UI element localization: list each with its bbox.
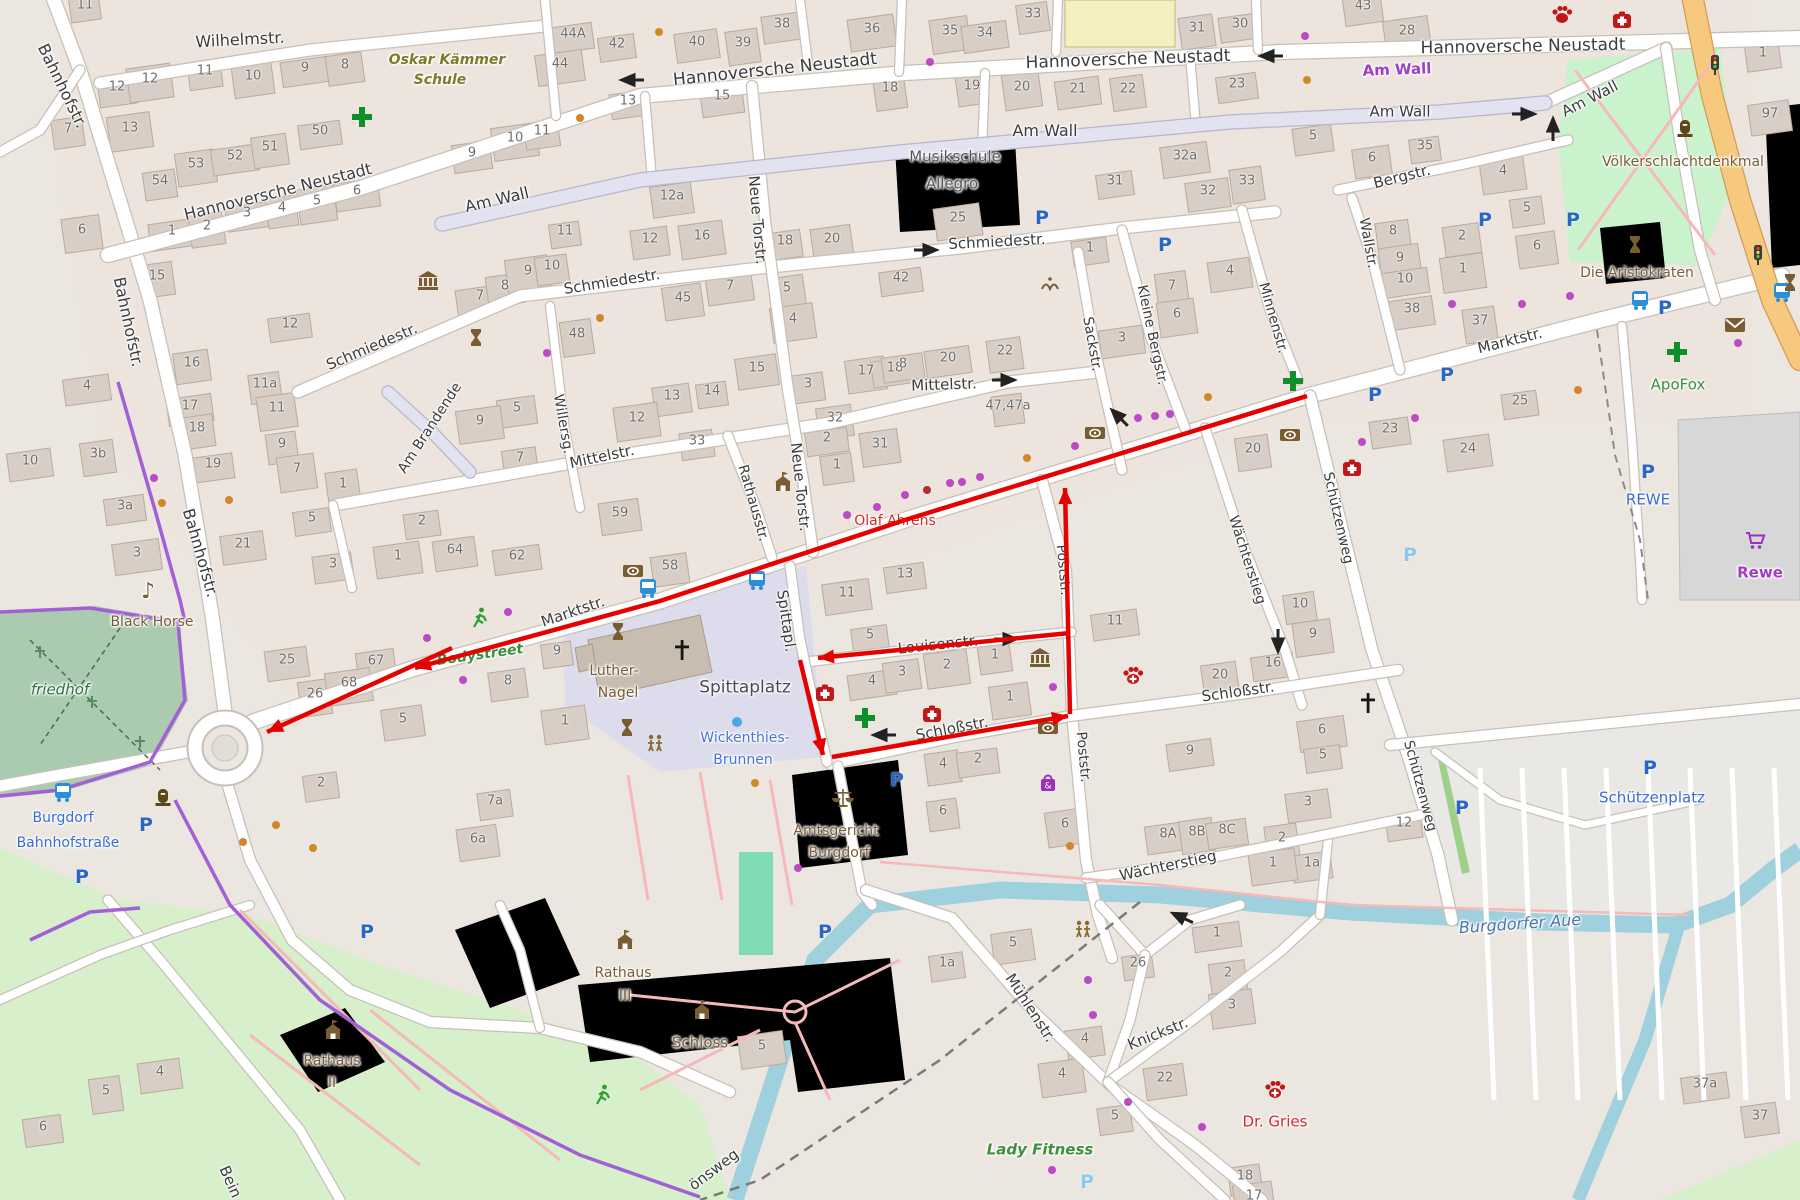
- oneway-arrow-icon: [1109, 407, 1132, 430]
- oneway-arrow-icon: [1261, 51, 1283, 61]
- route-arrowhead: [1058, 488, 1072, 504]
- poi-dot: [655, 28, 663, 36]
- poi-dot: [272, 821, 280, 829]
- poi-dot: [1448, 300, 1456, 308]
- poi-dot: [1049, 683, 1057, 691]
- poi-dot: [843, 511, 851, 519]
- oneway-arrow-icon: [622, 75, 644, 85]
- poi-dot: [150, 474, 158, 482]
- poi-dot: [1411, 414, 1419, 422]
- poi-dot: [1574, 386, 1582, 394]
- map-canvas[interactable]: Wilhelmstr.Bahnhofstr.Bahnhofstr.Bahnhof…: [0, 0, 1800, 1200]
- oneway-arrow-icon: [992, 375, 1014, 385]
- oneway-arrow-icon: [1171, 909, 1195, 927]
- poi-dot: [239, 838, 247, 846]
- poi-dot: [976, 473, 984, 481]
- poi-dot: [576, 114, 584, 122]
- poi-dot: [158, 499, 166, 507]
- poi-dot: [1084, 976, 1092, 984]
- oneway-arrow-icon: [874, 730, 896, 740]
- poi-dot: [1151, 412, 1159, 420]
- poi-dot: [901, 491, 909, 499]
- poi-dot: [1734, 339, 1742, 347]
- poi-dot: [1566, 292, 1574, 300]
- poi-dot: [423, 634, 431, 642]
- poi-dot: [1358, 438, 1366, 446]
- poi-dot: [794, 864, 802, 872]
- route-arrow: [267, 648, 452, 732]
- poi-dot: [309, 844, 317, 852]
- poi-dot: [1301, 32, 1309, 40]
- poi-dot: [751, 779, 759, 787]
- poi-dot: [1066, 842, 1074, 850]
- poi-dot: [926, 58, 934, 66]
- poi-dot: [1303, 76, 1311, 84]
- route-arrowhead: [1051, 712, 1068, 726]
- route-arrow: [818, 633, 1070, 658]
- poi-dot: [1023, 454, 1031, 462]
- poi-dot: [1124, 1098, 1132, 1106]
- poi-dot: [1048, 1166, 1056, 1174]
- route-arrow: [832, 716, 1068, 757]
- poi-dot: [543, 349, 551, 357]
- route-arrow: [1065, 488, 1070, 714]
- oneway-arrow-icon: [1548, 119, 1558, 141]
- poi-dot: [225, 496, 233, 504]
- poi-dot: [459, 676, 467, 684]
- route-annotation-layer: [0, 0, 1800, 1200]
- poi-dot: [958, 478, 966, 486]
- oneway-arrow-icon: [1512, 109, 1534, 119]
- poi-dot: [1198, 1123, 1206, 1131]
- poi-dot: [1166, 410, 1174, 418]
- poi-dot: [1204, 393, 1212, 401]
- poi-dot: [1089, 1011, 1097, 1019]
- poi-dot: [873, 503, 881, 511]
- poi-dot: [732, 717, 742, 727]
- oneway-arrow-icon: [1273, 629, 1283, 651]
- poi-dot: [1134, 414, 1142, 422]
- poi-dot: [923, 486, 931, 494]
- poi-dot: [504, 608, 512, 616]
- poi-dot: [1071, 442, 1079, 450]
- oneway-arrow-icon: [914, 245, 936, 255]
- poi-dot: [1518, 300, 1526, 308]
- route-arrow: [415, 396, 1307, 668]
- poi-dot: [596, 314, 604, 322]
- poi-dot: [946, 479, 954, 487]
